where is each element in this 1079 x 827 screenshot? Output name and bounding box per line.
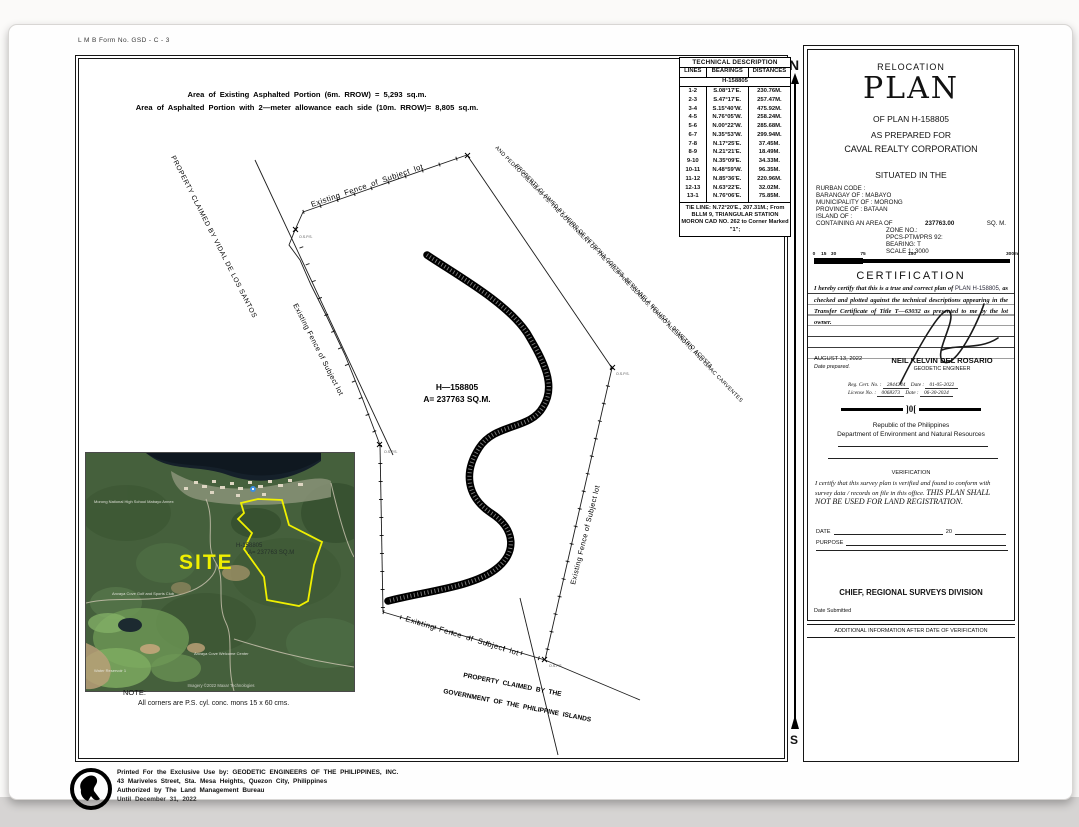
fence-label-bottom: Existing Fence of Subject lot xyxy=(404,614,520,657)
tech-cell: 75.85M. xyxy=(748,193,790,202)
situated-line: SITUATED IN THE xyxy=(808,170,1014,180)
technical-description: TECHNICAL DESCRIPTION LINES BEARINGS DIS… xyxy=(679,57,791,237)
asphalt-road xyxy=(388,255,549,601)
poi-welcome: Anvaya Cove Welcome Center xyxy=(194,651,249,656)
tech-row: 5-6N.00°22'W.285.68M. xyxy=(680,122,791,131)
tech-cell: 12-13 xyxy=(680,184,707,193)
tech-cell: N.35°53'W. xyxy=(706,131,748,140)
area-label: CONTAINING AN AREA OF xyxy=(816,221,893,228)
of-plan-line: OF PLAN H-158805 xyxy=(808,114,1014,124)
printer-attribution: Printed For the Exclusive Use by: GEODET… xyxy=(117,768,398,804)
chief-title: CHIEF, REGIONAL SURVEYS DIVISION xyxy=(808,588,1014,597)
tech-table-subheader: H-158805 xyxy=(680,77,791,87)
engineer-name: NEIL KELVIN DEL ROSARIO xyxy=(876,356,1008,365)
lot-id-label: H—158805 xyxy=(436,382,479,392)
footer-line2: 43 Mariveles Street, Sta. Mesa Heights, … xyxy=(117,777,398,786)
license-value: 0068373 xyxy=(877,390,904,397)
purpose-row: PURPOSE xyxy=(808,539,1014,546)
title-block: RELOCATION PLAN OF PLAN H-158805 AS PREP… xyxy=(803,45,1019,762)
tech-col-lines: LINES xyxy=(680,67,707,77)
tech-cell: 7-8 xyxy=(680,140,707,149)
tech-cell: 34.33M. xyxy=(748,158,790,167)
area-statement-2: Area of Asphalted Portion with 2—meter a… xyxy=(136,103,479,112)
tech-cell: N.85°36'E. xyxy=(706,175,748,184)
purpose-fill-line xyxy=(846,539,1006,546)
tech-cell: N.21°21'E. xyxy=(706,149,748,158)
tech-cell: 230.76M. xyxy=(748,87,790,96)
tech-row: 6-7N.35°53'W.299.94M. xyxy=(680,131,791,140)
license-date-label: Date : xyxy=(905,390,918,396)
tech-table-title: TECHNICAL DESCRIPTION xyxy=(680,58,791,68)
tech-col-distances: DISTANCES xyxy=(748,67,790,77)
aerial-site-inset: H-158805 A= 237763 SQ.M SITE Morong Nati… xyxy=(85,452,355,692)
inset-lot-id: H-158805 xyxy=(236,543,263,549)
tech-cell: 11-12 xyxy=(680,175,707,184)
tech-cell: 13-1 xyxy=(680,193,707,202)
tech-cell: N.17°25'E. xyxy=(706,140,748,149)
reg-cert-value: 2844244 xyxy=(883,382,910,389)
purpose-rule-2 xyxy=(816,550,1008,551)
tech-cell: 8-9 xyxy=(680,149,707,158)
license-label: License No. : xyxy=(848,390,876,396)
republic-block: Republic of the Philippines Department o… xyxy=(808,422,1014,439)
tech-cell: 9-10 xyxy=(680,158,707,167)
cert-plan-ref: PLAN H-158805, xyxy=(953,286,1002,292)
footer-line3: Authorized by The Land Management Bureau xyxy=(117,786,398,795)
map-pin-dot xyxy=(252,488,254,490)
date-prepared-block: AUGUST 13, 2022 Date prepared. xyxy=(814,356,876,372)
tech-cell: 5-6 xyxy=(680,122,707,131)
inset-lot-area: A= 237763 SQ.M xyxy=(248,550,294,556)
title-block-inner: RELOCATION PLAN OF PLAN H-158805 AS PREP… xyxy=(807,49,1015,621)
tech-cell: N.35°09'E. xyxy=(706,158,748,167)
note-body: All corners are P.S. cyl. conc. mons 15 … xyxy=(138,700,289,707)
scale-tick: 30 xyxy=(831,252,836,257)
vidal-claim-label: PROPERTY CLAIMED BY VIDAL DE LOS SANTOS xyxy=(169,155,258,320)
site-label: SITE xyxy=(179,551,234,574)
tech-cell: S.08°17'E. xyxy=(706,87,748,96)
fence-label-right: Existing Fence of Subject lot xyxy=(568,484,601,585)
tech-row: 3-4S.15°40'W.475.92M. xyxy=(680,105,791,114)
certification-text: I hereby certify that this is a true and… xyxy=(808,283,1014,361)
certification-heading: CERTIFICATION xyxy=(808,270,1014,282)
scale-tick: 15 xyxy=(821,252,826,257)
date-prepared-label: Date prepared. xyxy=(814,364,876,370)
license-row: License No. : 0068373 Date : 06-30-2024 xyxy=(848,389,1008,397)
poi-reservoir: Water Reservoir 1 xyxy=(94,668,127,673)
verification-heading: VERIFICATION xyxy=(808,470,1014,476)
fence-label-top: Existing Fence of Subject lot xyxy=(310,162,425,209)
scale-tick: 150 xyxy=(908,252,916,257)
scale-bar: 0 15 30 75 150 300 m xyxy=(814,252,1010,267)
aerial-imagery: H-158805 A= 237763 SQ.M SITE Morong Nati… xyxy=(86,453,355,692)
tech-cell: 220.96M. xyxy=(748,175,790,184)
engineer-title: GEODETIC ENGINEER xyxy=(876,366,1008,372)
tech-cell: N.48°59'W. xyxy=(706,166,748,175)
south-label: S xyxy=(790,733,798,747)
date-20: 20 xyxy=(946,529,952,535)
divider-line-left xyxy=(841,408,903,411)
date-prepared-value: AUGUST 13, 2022 xyxy=(814,356,876,362)
tech-rows: 1-2S.08°17'E.230.76M.2-3S.47°17'E.257.47… xyxy=(680,87,791,202)
tech-cell: 299.94M. xyxy=(748,131,790,140)
plan-heading: PLAN xyxy=(808,71,1014,106)
republic-line1: Republic of the Philippines xyxy=(808,422,1014,431)
imagery-credit: Imagery ©2022 Maxar Technologies xyxy=(187,683,254,688)
divider-glyph: ]0[ xyxy=(906,404,917,414)
svg-text:O.S.P.S.: O.S.P.S. xyxy=(299,235,313,239)
area-unit: SQ. M. xyxy=(987,221,1006,228)
tech-row: 11-12N.85°36'E.220.96M. xyxy=(680,175,791,184)
republic-line2: Department of Environment and Natural Re… xyxy=(808,431,1014,440)
poi-school: Morong National High School Mabayo Annex xyxy=(94,499,174,504)
tech-cell: 37.45M. xyxy=(748,140,790,149)
tech-row: 9-10N.35°09'E.34.33M. xyxy=(680,158,791,167)
technical-description-table: TECHNICAL DESCRIPTION LINES BEARINGS DIS… xyxy=(679,57,791,203)
tech-cell: N.76°06'E. xyxy=(706,193,748,202)
tie-line-note: TIE LINE: N.72°20'E., 207.31M.; From BLL… xyxy=(679,203,791,238)
geodetic-engineers-logo xyxy=(68,766,114,812)
company-name: CAVAL REALTY CORPORATION xyxy=(808,144,1014,154)
tech-cell: 18.49M. xyxy=(748,149,790,158)
signature-rule-1 xyxy=(838,446,988,447)
date-label: DATE xyxy=(816,529,831,535)
tech-row: 12-13N.63°22'E.32.02M. xyxy=(680,184,791,193)
govt-claim-label-2: GOVERNMENT OF THE PHILIPPINE ISLANDS xyxy=(443,688,593,724)
footer-line4: Until December 31, 2022 xyxy=(117,795,398,804)
tech-cell: S.47°17'E. xyxy=(706,96,748,105)
engineer-row: AUGUST 13, 2022 Date prepared. NEIL KELV… xyxy=(808,356,1014,372)
tech-cell: 1-2 xyxy=(680,87,707,96)
tech-cell: 3-4 xyxy=(680,105,707,114)
footer-line1: Printed For the Exclusive Use by: GEODET… xyxy=(117,768,398,777)
tech-cell: 285.68M. xyxy=(748,122,790,131)
prepared-for-line: AS PREPARED FOR xyxy=(808,130,1014,140)
scale-tick: 0 xyxy=(813,252,816,257)
svg-text:O.S.P.S.: O.S.P.S. xyxy=(616,372,630,376)
tech-cell: 257.47M. xyxy=(748,96,790,105)
verification-text: I certify that this survey plan is verif… xyxy=(808,480,1014,508)
additional-info-band: ADDITIONAL INFORMATION AFTER DATE OF VER… xyxy=(807,624,1015,638)
tech-row: 8-9N.21°21'E.18.49M. xyxy=(680,149,791,158)
license-date-value: 06-30-2024 xyxy=(920,390,953,397)
poi-golf: Anvaya Cove Golf and Sports Club xyxy=(112,591,175,596)
decorative-divider: ]0[ xyxy=(808,404,1014,414)
location-fields: RURBAN CODE : BARANGAY OF : MABAYO MUNIC… xyxy=(808,186,1014,227)
scale-bar-block xyxy=(814,258,863,264)
asphalt-road-hatch xyxy=(388,255,549,601)
tech-cell: 10-11 xyxy=(680,166,707,175)
tech-cell: 258.24M. xyxy=(748,114,790,123)
fence-label-left: Existing Fence of Subject lot xyxy=(291,302,345,397)
scale-tick: 75 xyxy=(860,252,865,257)
tech-row: 1-2S.08°17'E.230.76M. xyxy=(680,87,791,96)
registration-rows: Reg. Cert. No. : 2844244 Date : 01-05-20… xyxy=(808,381,1014,397)
south-arrowhead-icon xyxy=(791,715,799,729)
north-arrow-line xyxy=(794,81,796,729)
scale-unit: m xyxy=(1014,252,1018,257)
cert-text-part1: I hereby certify that this is a true and… xyxy=(814,285,953,292)
tech-cell: N.63°22'E. xyxy=(706,184,748,193)
lot-area-label: A= 237763 SQ.M. xyxy=(423,394,490,404)
date-submitted-label: Date Submitted xyxy=(808,608,1014,614)
engineer-block: NEIL KELVIN DEL ROSARIO GEODETIC ENGINEE… xyxy=(876,356,1008,372)
tech-cell: 96.35M. xyxy=(748,166,790,175)
tech-cell: 475.92M. xyxy=(748,105,790,114)
date-row: DATE 20 xyxy=(808,528,1014,535)
area-value: 237763.00 xyxy=(925,221,954,228)
tech-row: 13-1N.76°06'E.75.85M. xyxy=(680,193,791,202)
signature-rule-2 xyxy=(828,458,998,459)
svg-text:O.S.P.S.: O.S.P.S. xyxy=(549,664,563,668)
tech-cell: S.15°40'W. xyxy=(706,105,748,114)
svg-text:O.S.P.S.: O.S.P.S. xyxy=(384,450,398,454)
note-heading: NOTE: xyxy=(123,688,146,697)
divider-line-right xyxy=(919,408,981,411)
tech-row: 2-3S.47°17'E.257.47M. xyxy=(680,96,791,105)
area-statement-1: Area of Existing Asphalted Portion (6m. … xyxy=(187,90,426,99)
reg-date-value: 01-05-2022 xyxy=(925,382,958,389)
reg-date-label: Date : xyxy=(911,382,924,388)
tech-row: 7-8N.17°25'E.37.45M. xyxy=(680,140,791,149)
tech-cell: 32.02M. xyxy=(748,184,790,193)
reg-cert-row: Reg. Cert. No. : 2844244 Date : 01-05-20… xyxy=(848,381,1008,389)
tech-cell: 4-5 xyxy=(680,114,707,123)
date-fill-line xyxy=(834,528,943,535)
tech-row: 4-5N.76°05'W.258.24M. xyxy=(680,114,791,123)
tech-cell: N.00°22'W. xyxy=(706,122,748,131)
tech-cell: 6-7 xyxy=(680,131,707,140)
date-year-line xyxy=(955,528,1006,535)
tech-row: 10-11N.48°59'W.96.35M. xyxy=(680,166,791,175)
tech-col-bearings: BEARINGS xyxy=(706,67,748,77)
tech-cell: N.76°05'W. xyxy=(706,114,748,123)
form-number: L M B Form No. GSD - C - 3 xyxy=(78,37,170,44)
purpose-label: PURPOSE xyxy=(816,540,843,546)
tech-cell: 2-3 xyxy=(680,96,707,105)
reg-cert-label: Reg. Cert. No. : xyxy=(848,382,882,388)
